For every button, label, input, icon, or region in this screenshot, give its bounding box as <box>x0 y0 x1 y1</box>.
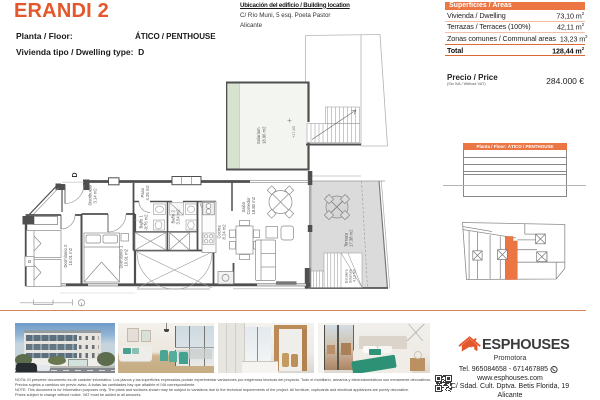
svg-text:10.01 m2: 10.01 m2 <box>68 247 73 265</box>
svg-text:D: D <box>72 172 79 177</box>
svg-text:3.54 m2: 3.54 m2 <box>176 209 181 225</box>
svg-text:17.38 m2: 17.38 m2 <box>349 229 354 247</box>
svg-text:18.80 m2: 18.80 m2 <box>251 196 256 214</box>
svg-text:4.26 m2: 4.26 m2 <box>145 185 150 201</box>
svg-text:8.24 m2: 8.24 m2 <box>222 224 227 240</box>
svg-text:3.76 m2: 3.76 m2 <box>144 214 149 230</box>
svg-text:10.91 m2: 10.91 m2 <box>124 248 129 266</box>
svg-text:4.12 m2: 4.12 m2 <box>353 269 357 282</box>
svg-text:Solarium: Solarium <box>256 127 261 144</box>
svg-text:+17.40: +17.40 <box>292 126 296 138</box>
svg-text:3.14 m2: 3.14 m2 <box>93 188 98 204</box>
svg-text:18.96 m2: 18.96 m2 <box>262 126 267 144</box>
